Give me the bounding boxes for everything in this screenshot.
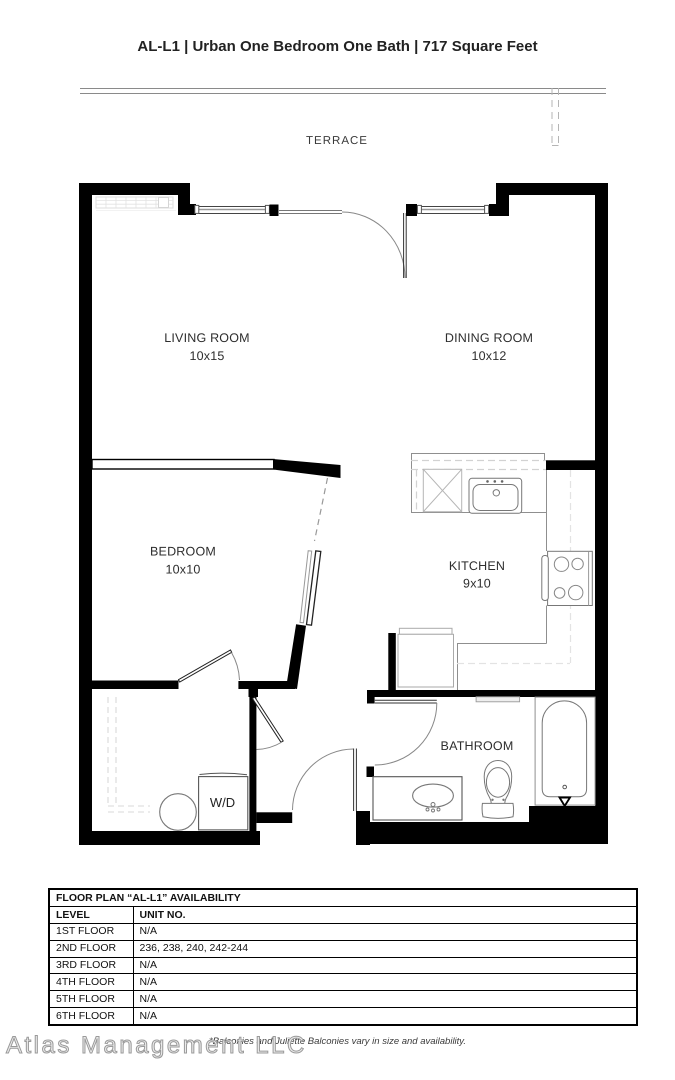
svg-text:10x10: 10x10 (165, 563, 200, 577)
svg-text:BATHROOM: BATHROOM (441, 739, 514, 753)
svg-text:10x12: 10x12 (471, 349, 506, 363)
svg-text:9x10: 9x10 (463, 577, 491, 591)
svg-text:TERRACE: TERRACE (306, 135, 368, 147)
svg-text:BEDROOM: BEDROOM (150, 545, 216, 559)
svg-text:10x15: 10x15 (189, 349, 224, 363)
svg-text:W/D: W/D (210, 795, 235, 810)
svg-text:LIVING ROOM: LIVING ROOM (164, 331, 250, 345)
svg-text:DINING ROOM: DINING ROOM (445, 331, 533, 345)
svg-text:KITCHEN: KITCHEN (449, 559, 505, 573)
